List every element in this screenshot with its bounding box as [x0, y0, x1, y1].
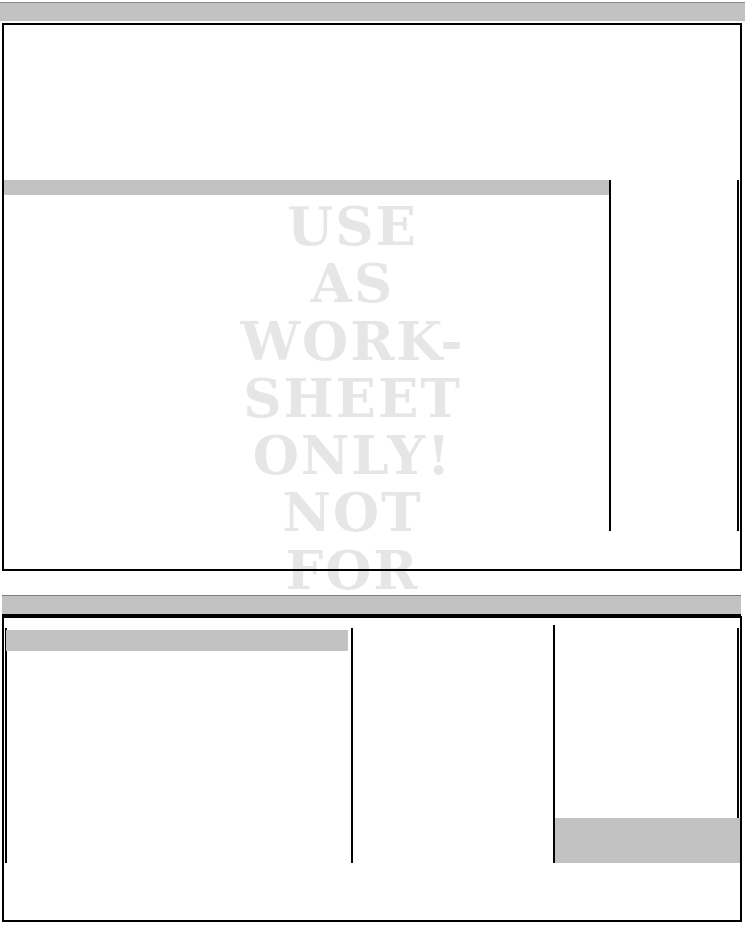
lower-left-subheader-bar [6, 630, 348, 651]
worksheet-page: USE AS WORK- SHEET ONLY! NOT FOR [0, 0, 745, 926]
upper-right-column-divider [737, 180, 739, 531]
lower-column-divider-1 [351, 628, 353, 863]
upper-section-header-bar [4, 180, 609, 195]
top-header-bar [0, 2, 745, 21]
upper-form-panel [2, 23, 742, 571]
upper-column-divider [609, 180, 611, 531]
lower-form-panel [2, 616, 742, 922]
lower-section-header-bar [2, 595, 741, 616]
lower-left-inner-rule [5, 628, 7, 863]
lower-right-shaded-box [555, 818, 740, 863]
